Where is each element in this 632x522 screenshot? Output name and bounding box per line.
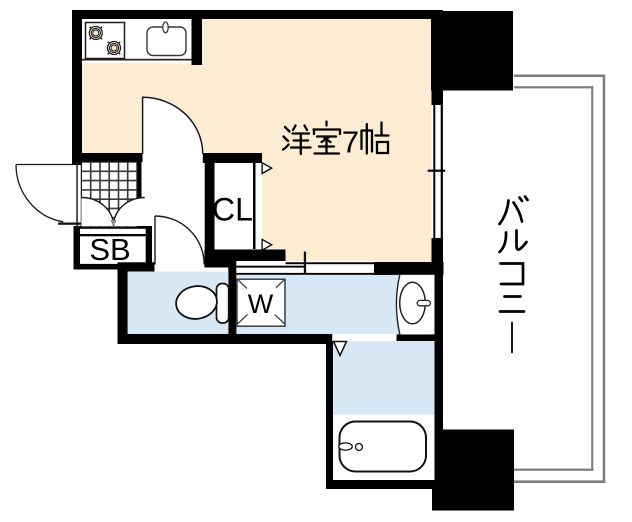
svg-text:SB: SB — [89, 232, 130, 267]
svg-text:CL: CL — [212, 192, 253, 228]
svg-text:7: 7 — [342, 125, 359, 160]
svg-text:W: W — [248, 289, 274, 319]
